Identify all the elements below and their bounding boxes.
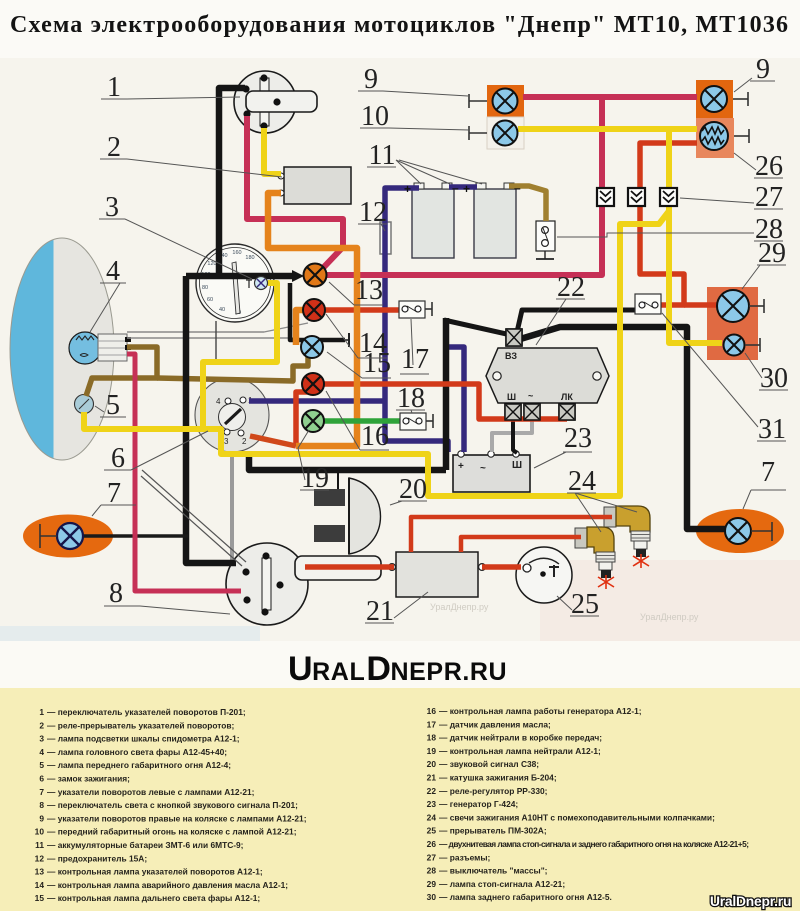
svg-text:4: 4 — [39, 747, 44, 757]
svg-text:29: 29 — [427, 879, 437, 889]
svg-text:— переключатель света с кнопко: — переключатель света с кнопкой звуковог… — [47, 800, 298, 810]
svg-text:14: 14 — [35, 880, 45, 890]
svg-text:1: 1 — [107, 72, 121, 103]
svg-text:Схема электрооборудования мото: Схема электрооборудования мотоциклов "Дн… — [10, 12, 788, 38]
svg-text:— контрольная лампа работы ген: — контрольная лампа работы генератора А1… — [439, 706, 642, 716]
svg-text:40: 40 — [219, 307, 225, 313]
svg-text:9: 9 — [39, 813, 44, 823]
svg-text:17: 17 — [401, 344, 429, 375]
svg-text:5: 5 — [39, 760, 44, 770]
svg-text:9: 9 — [364, 64, 378, 95]
svg-text:12: 12 — [359, 197, 387, 228]
svg-text:— контрольная лампа указателей: — контрольная лампа указателей поворотов… — [47, 867, 263, 877]
svg-text:6: 6 — [111, 443, 125, 474]
svg-text:25: 25 — [571, 589, 599, 620]
svg-text:11: 11 — [369, 140, 396, 171]
svg-text:19: 19 — [301, 463, 329, 494]
svg-text:180: 180 — [245, 255, 254, 261]
svg-text:6: 6 — [39, 774, 44, 784]
svg-text:УралДнепр.ру: УралДнепр.ру — [640, 612, 699, 622]
svg-text:13: 13 — [35, 867, 45, 877]
svg-text:26: 26 — [755, 151, 783, 182]
svg-text:28: 28 — [427, 866, 437, 876]
svg-text:22: 22 — [557, 272, 585, 303]
svg-text:23: 23 — [427, 799, 437, 809]
svg-text:31: 31 — [758, 414, 786, 445]
svg-text:21: 21 — [366, 596, 394, 627]
svg-text:— лампа стоп-сигнала А12-21;: — лампа стоп-сигнала А12-21; — [439, 879, 565, 889]
svg-text:— контрольная лампа дальнего с: — контрольная лампа дальнего света фары … — [47, 893, 260, 903]
svg-text:2: 2 — [242, 437, 247, 446]
svg-text:7: 7 — [39, 787, 44, 797]
svg-text:16: 16 — [361, 421, 389, 452]
svg-text:20: 20 — [427, 759, 437, 769]
svg-text:— предохранитель 15А;: — предохранитель 15А; — [47, 853, 147, 863]
svg-text:— передний габаритный огонь на: — передний габаритный огонь на коляске с… — [47, 827, 297, 837]
svg-text:29: 29 — [758, 238, 786, 269]
svg-text:— лампа головного света фары А: — лампа головного света фары А12-45+40; — [47, 747, 227, 757]
svg-text:23: 23 — [564, 423, 592, 454]
svg-text:16: 16 — [427, 706, 437, 716]
svg-text:— разъемы;: — разъемы; — [439, 852, 490, 862]
svg-text:26: 26 — [427, 839, 437, 849]
svg-text:— датчик нейтрали в коробке пе: — датчик нейтрали в коробке передач; — [439, 733, 602, 743]
svg-text:–: – — [514, 181, 521, 195]
svg-text:160: 160 — [232, 250, 241, 256]
svg-text:— катушка зажигания Б-204;: — катушка зажигания Б-204; — [439, 773, 557, 783]
svg-text:12: 12 — [35, 853, 45, 863]
svg-text:3: 3 — [224, 437, 229, 446]
svg-text:— указатели поворотов правые н: — указатели поворотов правые на коляске … — [47, 813, 307, 823]
svg-text:— датчик давления масла;: — датчик давления масла; — [439, 719, 551, 729]
svg-text:15: 15 — [35, 893, 45, 903]
svg-text:19: 19 — [427, 746, 437, 756]
svg-text:17: 17 — [427, 719, 437, 729]
svg-text:— указатели поворотов левые с: — указатели поворотов левые с лампами А1… — [47, 787, 254, 797]
svg-text:22: 22 — [427, 786, 437, 796]
svg-text:+: + — [463, 182, 470, 196]
svg-text:Ш: Ш — [507, 392, 516, 402]
svg-text:9: 9 — [756, 54, 770, 85]
svg-text:8: 8 — [39, 800, 44, 810]
svg-text:7: 7 — [761, 457, 775, 488]
svg-text:3: 3 — [39, 734, 44, 744]
svg-text:— контрольная лампа нейтрали А: — контрольная лампа нейтрали А12-1; — [439, 746, 601, 756]
svg-text:24: 24 — [427, 812, 437, 822]
svg-text:5: 5 — [106, 390, 120, 421]
svg-text:— лампа подсветки шкалы спидом: — лампа подсветки шкалы спидометра А12-1… — [47, 734, 240, 744]
svg-text:10: 10 — [361, 101, 389, 132]
svg-text:13: 13 — [355, 275, 383, 306]
svg-text:— переключатель указателей пов: — переключатель указателей поворотов П-2… — [47, 707, 246, 717]
svg-text:— реле-прерыватель указателей: — реле-прерыватель указателей поворотов; — [47, 720, 234, 730]
svg-text:2: 2 — [107, 132, 121, 163]
svg-text:18: 18 — [397, 383, 425, 414]
svg-text:8: 8 — [109, 578, 123, 609]
svg-text:Ш: Ш — [512, 460, 522, 471]
svg-text:1: 1 — [39, 707, 44, 717]
svg-text:25: 25 — [427, 826, 437, 836]
svg-text:UralDnepr.ru: UralDnepr.ru — [710, 894, 791, 909]
svg-text:4: 4 — [106, 256, 120, 287]
svg-text:~: ~ — [528, 391, 533, 401]
svg-text:+: + — [458, 461, 464, 472]
svg-text:10: 10 — [35, 827, 45, 837]
svg-text:— аккумуляторные батареи ЗМТ-6: — аккумуляторные батареи ЗМТ-6 или 6МТС-… — [47, 840, 243, 850]
svg-text:27: 27 — [755, 182, 783, 213]
svg-text:24: 24 — [568, 466, 596, 497]
svg-text:+: + — [404, 182, 411, 196]
svg-text:ВЗ: ВЗ — [505, 351, 517, 361]
svg-text:18: 18 — [427, 733, 437, 743]
svg-text:— свечи зажигания А10НТ с поме: — свечи зажигания А10НТ с помехоподавите… — [439, 812, 715, 822]
svg-text:УралДнепр.ру: УралДнепр.ру — [430, 602, 489, 612]
svg-text:60: 60 — [207, 297, 213, 303]
svg-text:— замок зажигания;: — замок зажигания; — [47, 774, 130, 784]
svg-text:21: 21 — [427, 773, 437, 783]
svg-text:— двухнитевая лампа стоп-сигна: — двухнитевая лампа стоп-сигнала и задне… — [439, 839, 749, 849]
svg-text:— выключатель "массы";: — выключатель "массы"; — [439, 866, 547, 876]
svg-text:80: 80 — [202, 285, 208, 291]
svg-text:— лампа переднего габаритного: — лампа переднего габаритного огня А12-4… — [47, 760, 231, 770]
svg-text:2: 2 — [39, 720, 44, 730]
svg-text:27: 27 — [427, 852, 437, 862]
svg-text:3: 3 — [105, 192, 119, 223]
svg-text:30: 30 — [760, 363, 788, 394]
svg-text:— генератор Г-424;: — генератор Г-424; — [439, 799, 518, 809]
svg-text:— контрольная лампа аварийного: — контрольная лампа аварийного давления … — [47, 880, 288, 890]
svg-text:— реле-регулятор РР-330;: — реле-регулятор РР-330; — [439, 786, 547, 796]
svg-text:7: 7 — [107, 478, 121, 509]
svg-text:–: – — [452, 181, 459, 195]
svg-text:ЛК: ЛК — [561, 392, 573, 402]
svg-text:— лампа заднего габаритного ог: — лампа заднего габаритного огня А12-5. — [439, 892, 612, 902]
svg-text:— прерыватель ПМ-302А;: — прерыватель ПМ-302А; — [439, 826, 547, 836]
svg-text:20: 20 — [399, 474, 427, 505]
svg-text:~: ~ — [480, 463, 486, 474]
svg-text:30: 30 — [427, 892, 437, 902]
svg-text:4: 4 — [216, 397, 221, 406]
svg-text:11: 11 — [35, 840, 44, 850]
svg-text:15: 15 — [363, 348, 391, 379]
svg-text:— звуковой сигнал С38;: — звуковой сигнал С38; — [439, 759, 539, 769]
